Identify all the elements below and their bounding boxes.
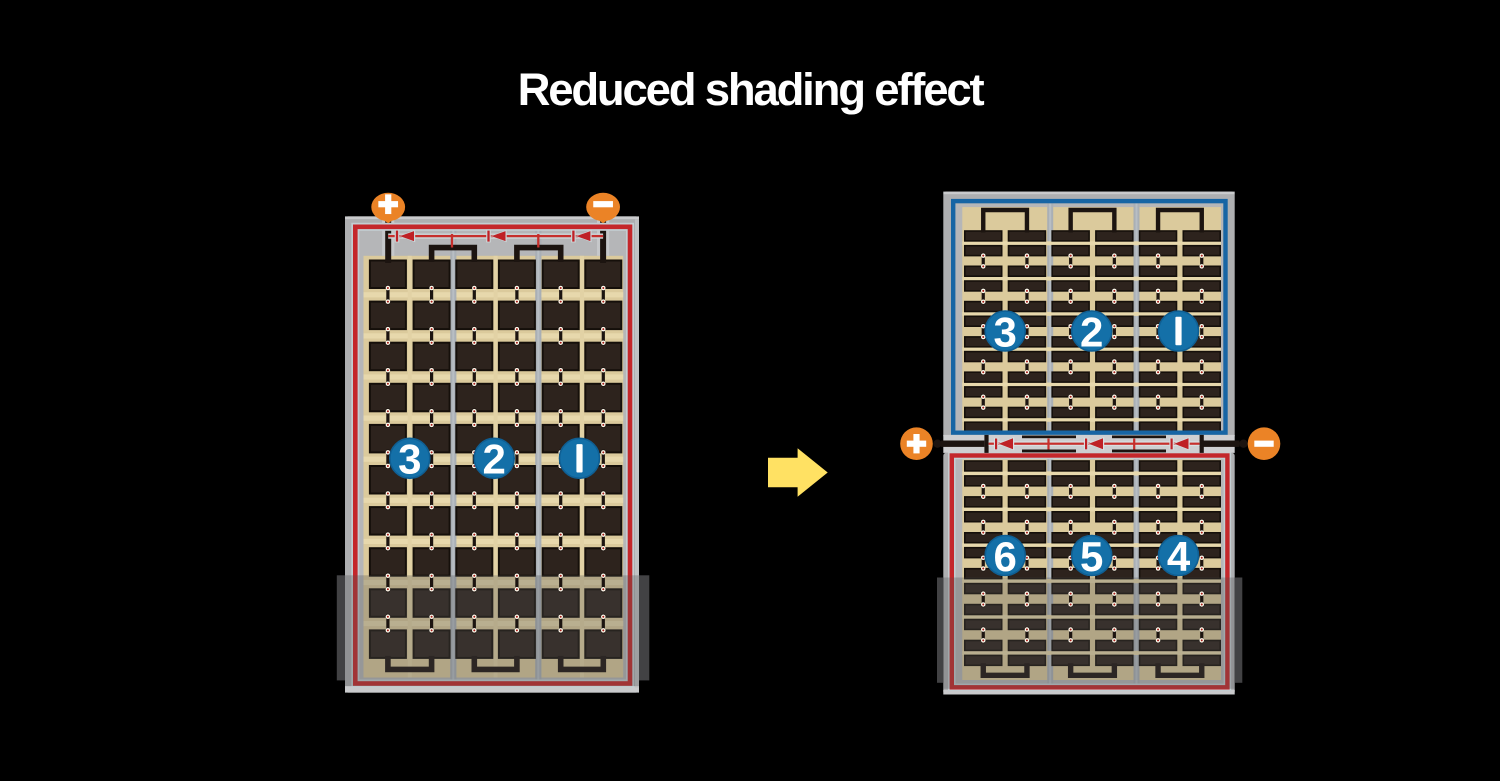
- svg-text:4: 4: [1167, 533, 1191, 580]
- svg-text:6: 6: [994, 533, 1017, 580]
- svg-text:5: 5: [1080, 533, 1103, 580]
- svg-text:Reduced shading effect: Reduced shading effect: [518, 64, 985, 115]
- svg-text:3: 3: [994, 308, 1017, 355]
- svg-text:2: 2: [483, 436, 506, 483]
- svg-text:3: 3: [398, 436, 421, 483]
- svg-text:2: 2: [1080, 308, 1103, 355]
